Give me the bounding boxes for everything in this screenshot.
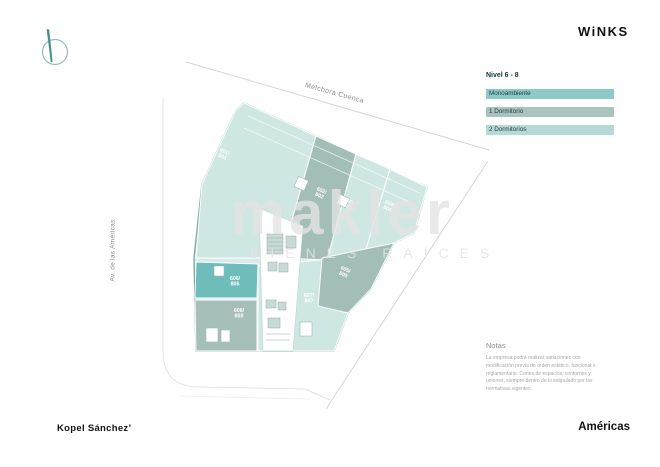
project-name: Américas [578,421,630,433]
legend-item-1-dormitorio: 1 Dormitorio [486,107,614,117]
street-label-left: Av. de las Américas [110,191,117,311]
site-boundary-sidewalk [180,396,310,399]
notes-body: La empresa podrá realizar variaciones co… [486,355,608,394]
legend-item-2-dormitorios: 2 Dormitorios [486,125,614,135]
legend: Nivel 6 - 8 Monoambiente 1 Dormitorio 2 … [486,72,616,143]
legend-item-label: 1 Dormitorio [486,107,614,117]
legend-title: Nivel 6 - 8 [486,72,616,79]
unit-608-808[interactable] [195,300,257,351]
legend-item-monoambiente: Monoambiente [486,89,614,99]
page: WiNKS [0,0,660,467]
unit-606-806[interactable] [195,262,258,298]
legend-item-label: 2 Dormitorios [486,125,614,135]
unit-number-label: 606/806 [230,276,241,288]
watermark-line2: BIENES RAÍCES [250,245,500,261]
developer-logo: Kopel Sánchez’ [57,423,131,434]
legend-item-label: Monoambiente [486,89,614,99]
unit-number-label: 608/808 [234,308,245,320]
watermark-line1: makler [230,178,454,249]
notes-section: Notas La empresa podrá realizar variacio… [486,341,608,394]
notes-title: Notas [486,341,608,350]
unit-number-label: 607/807 [304,293,315,305]
